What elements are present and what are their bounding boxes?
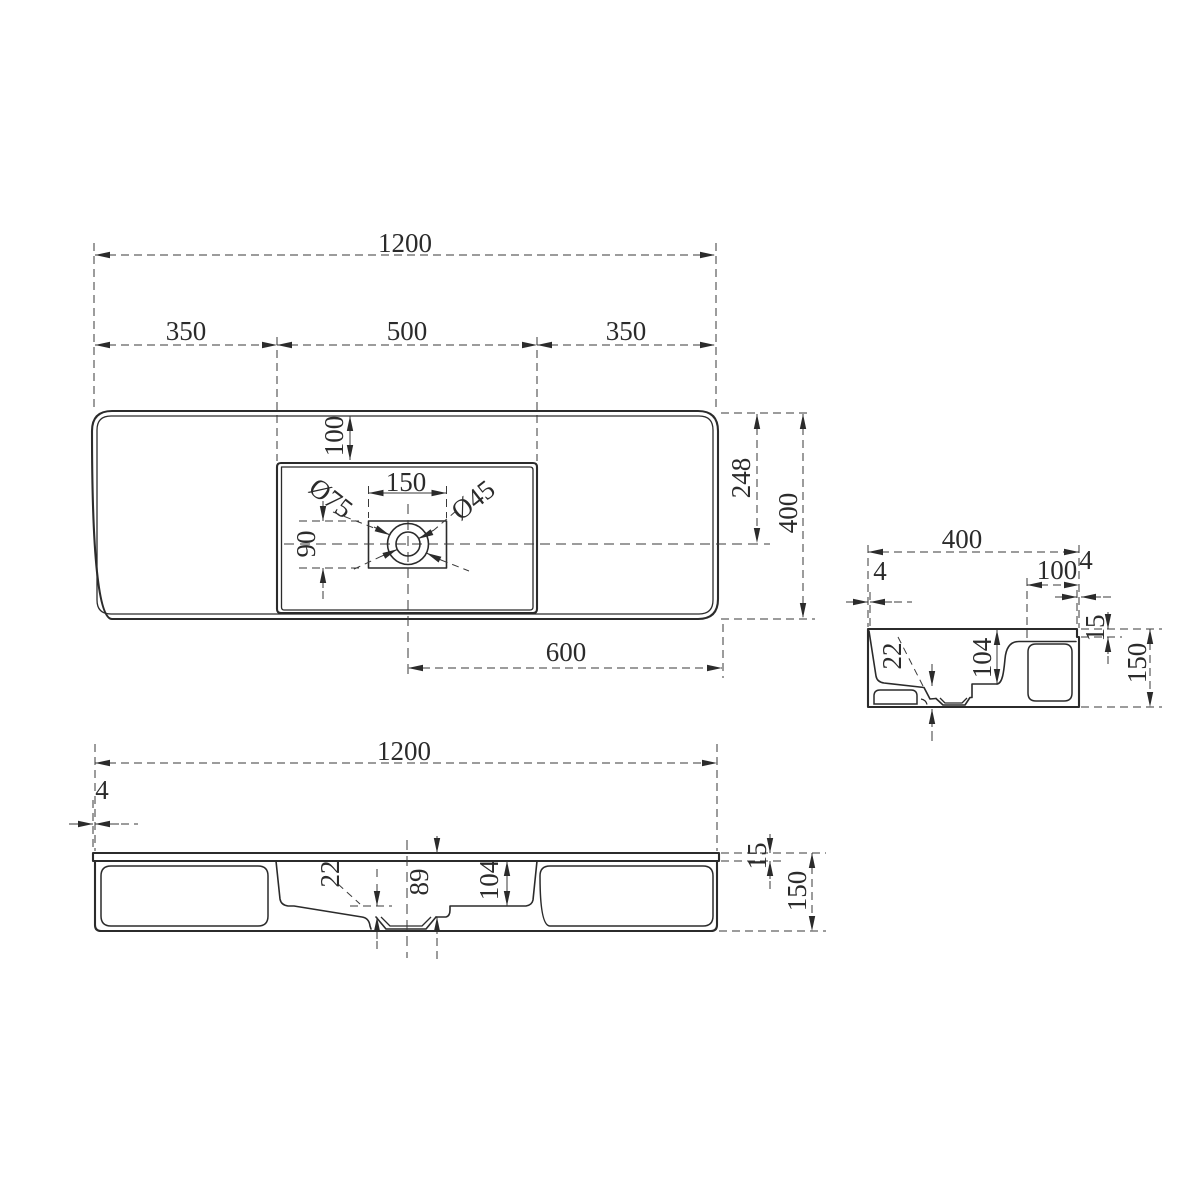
dim-side-overall-height: 150: [1122, 643, 1152, 684]
dim-front-side-lip: 4: [95, 775, 109, 805]
dimension-arrowhead: [707, 665, 722, 671]
drawing-line: [92, 411, 718, 619]
drawing-line: [1028, 644, 1072, 701]
dimension-arrowhead: [870, 599, 885, 605]
dimension-arrowhead: [374, 891, 380, 906]
dim-side-overall-depth: 400: [942, 524, 983, 554]
dimension-arrowhead: [95, 760, 110, 766]
dim-plan-faucet-hole-dia: Ø75: [303, 472, 358, 524]
plan-view: 1200350500350100150Ø75Ø4590248400600: [92, 228, 815, 678]
dim-plan-overall-width: 1200: [378, 228, 432, 258]
dimension-arrowhead: [504, 861, 510, 876]
dim-plan-overall-depth: 400: [773, 493, 803, 534]
dimension-arrowhead: [262, 342, 277, 348]
drawing-line: [936, 684, 997, 705]
dim-plan-drain-cutout-width: 150: [386, 467, 427, 497]
front-view: 12004228910415150: [69, 736, 826, 960]
dimension-arrowhead: [1062, 594, 1077, 600]
dimension-arrowhead: [809, 853, 815, 868]
dimension-arrowhead: [1147, 629, 1153, 644]
dim-front-slope-drop: 22: [315, 861, 345, 888]
dim-plan-center-offset: 248: [726, 458, 756, 499]
drawing-line: [921, 699, 927, 705]
dim-side-back-ledge-width: 100: [1037, 555, 1078, 585]
dimension-arrowhead: [504, 891, 510, 906]
dim-plan-basin-top-inset: 100: [319, 416, 349, 457]
dimension-arrowhead: [809, 916, 815, 931]
dimension-arrowhead: [700, 252, 715, 258]
drawing-line: [940, 698, 967, 703]
dimension-arrowhead: [78, 821, 93, 827]
dimension-arrowhead: [929, 671, 935, 686]
dimension-arrowhead: [700, 342, 715, 348]
dim-plan-right-segment: 350: [606, 316, 647, 346]
dimension-arrowhead: [800, 414, 806, 429]
washbasin-technical-drawing: 1200350500350100150Ø75Ø45902484006004004…: [0, 0, 1200, 1200]
dim-side-back-notch: 4: [1079, 545, 1093, 575]
dim-front-bowl-depth: 104: [474, 859, 504, 900]
dim-front-overall-width: 1200: [377, 736, 431, 766]
drawing-line: [376, 917, 436, 929]
dimension-arrowhead: [369, 490, 384, 496]
drawing-line: [997, 642, 1076, 685]
dimension-arrowhead: [432, 490, 447, 496]
dim-front-drain-depth: 89: [404, 869, 434, 896]
dim-front-overall-height: 150: [782, 871, 812, 912]
dim-side-bowl-depth: 104: [967, 637, 997, 678]
dimension-arrowhead: [95, 342, 110, 348]
technical-drawing-page: 1200350500350100150Ø75Ø45902484006004004…: [0, 0, 1200, 1200]
drawing-line: [540, 866, 713, 926]
dimension-arrowhead: [868, 549, 883, 555]
dim-side-front-lip: 4: [873, 556, 887, 586]
dim-side-slope-drop: 22: [877, 643, 907, 670]
dimension-arrowhead: [702, 760, 717, 766]
drawing-line: [441, 560, 469, 571]
drawing-line: [97, 416, 713, 614]
dimension-arrowhead: [853, 599, 868, 605]
drawing-line: [874, 690, 917, 704]
dim-front-top-thickness: 15: [742, 843, 772, 870]
dimension-arrowhead: [1081, 594, 1096, 600]
dimension-arrowhead: [522, 342, 537, 348]
dim-plan-drain-cutout-height: 90: [291, 531, 321, 558]
side-view: 400410042210415150: [846, 524, 1162, 744]
dim-side-top-thickness: 15: [1080, 615, 1110, 642]
drawing-line: [93, 853, 719, 861]
dimension-arrowhead: [1147, 692, 1153, 707]
dimension-arrowhead: [537, 342, 552, 348]
dimension-arrowhead: [754, 414, 760, 429]
dim-plan-drain-to-right-edge: 600: [546, 637, 587, 667]
dim-plan-basin-width: 500: [387, 316, 428, 346]
dimension-arrowhead: [754, 528, 760, 543]
dimension-arrowhead: [800, 603, 806, 618]
dimension-arrowhead: [320, 568, 326, 583]
dimension-arrowhead: [929, 709, 935, 724]
drawing-line: [101, 866, 268, 926]
dimension-arrowhead: [277, 342, 292, 348]
drawing-line: [381, 917, 431, 926]
dimension-arrowhead: [95, 821, 110, 827]
dim-plan-left-segment: 350: [166, 316, 207, 346]
dim-plan-drain-hole-dia: Ø45: [445, 474, 500, 526]
dimension-arrowhead: [434, 838, 440, 853]
dimension-arrowhead: [374, 917, 380, 932]
dimension-arrowhead: [408, 665, 423, 671]
dimension-arrowhead: [95, 252, 110, 258]
